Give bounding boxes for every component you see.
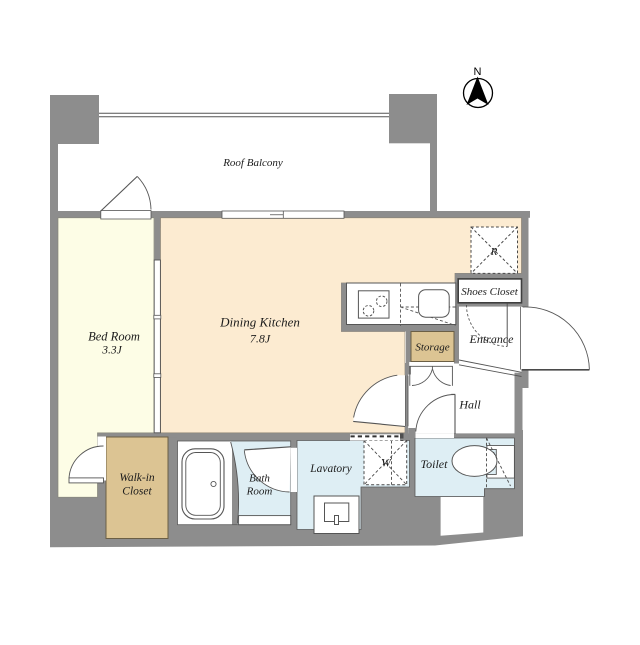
svg-text:Hall: Hall <box>458 398 481 412</box>
svg-text:Shoes Closet: Shoes Closet <box>461 286 518 298</box>
svg-text:N: N <box>474 66 482 78</box>
svg-text:Bed Room: Bed Room <box>88 330 140 344</box>
svg-text:Bath: Bath <box>249 473 270 485</box>
svg-text:Room: Room <box>246 486 273 498</box>
svg-text:Closet: Closet <box>122 486 152 498</box>
svg-text:W: W <box>381 458 392 470</box>
svg-text:R: R <box>490 246 498 258</box>
svg-text:Storage: Storage <box>415 342 449 354</box>
svg-text:Walk-in: Walk-in <box>119 472 155 484</box>
svg-text:7.8J: 7.8J <box>250 332 271 346</box>
svg-text:3.3J: 3.3J <box>101 345 122 357</box>
svg-text:Dining Kitchen: Dining Kitchen <box>219 315 300 330</box>
svg-text:Lavatory: Lavatory <box>309 463 352 475</box>
svg-text:Roof Balcony: Roof Balcony <box>222 157 283 169</box>
svg-text:Toilet: Toilet <box>421 457 449 471</box>
